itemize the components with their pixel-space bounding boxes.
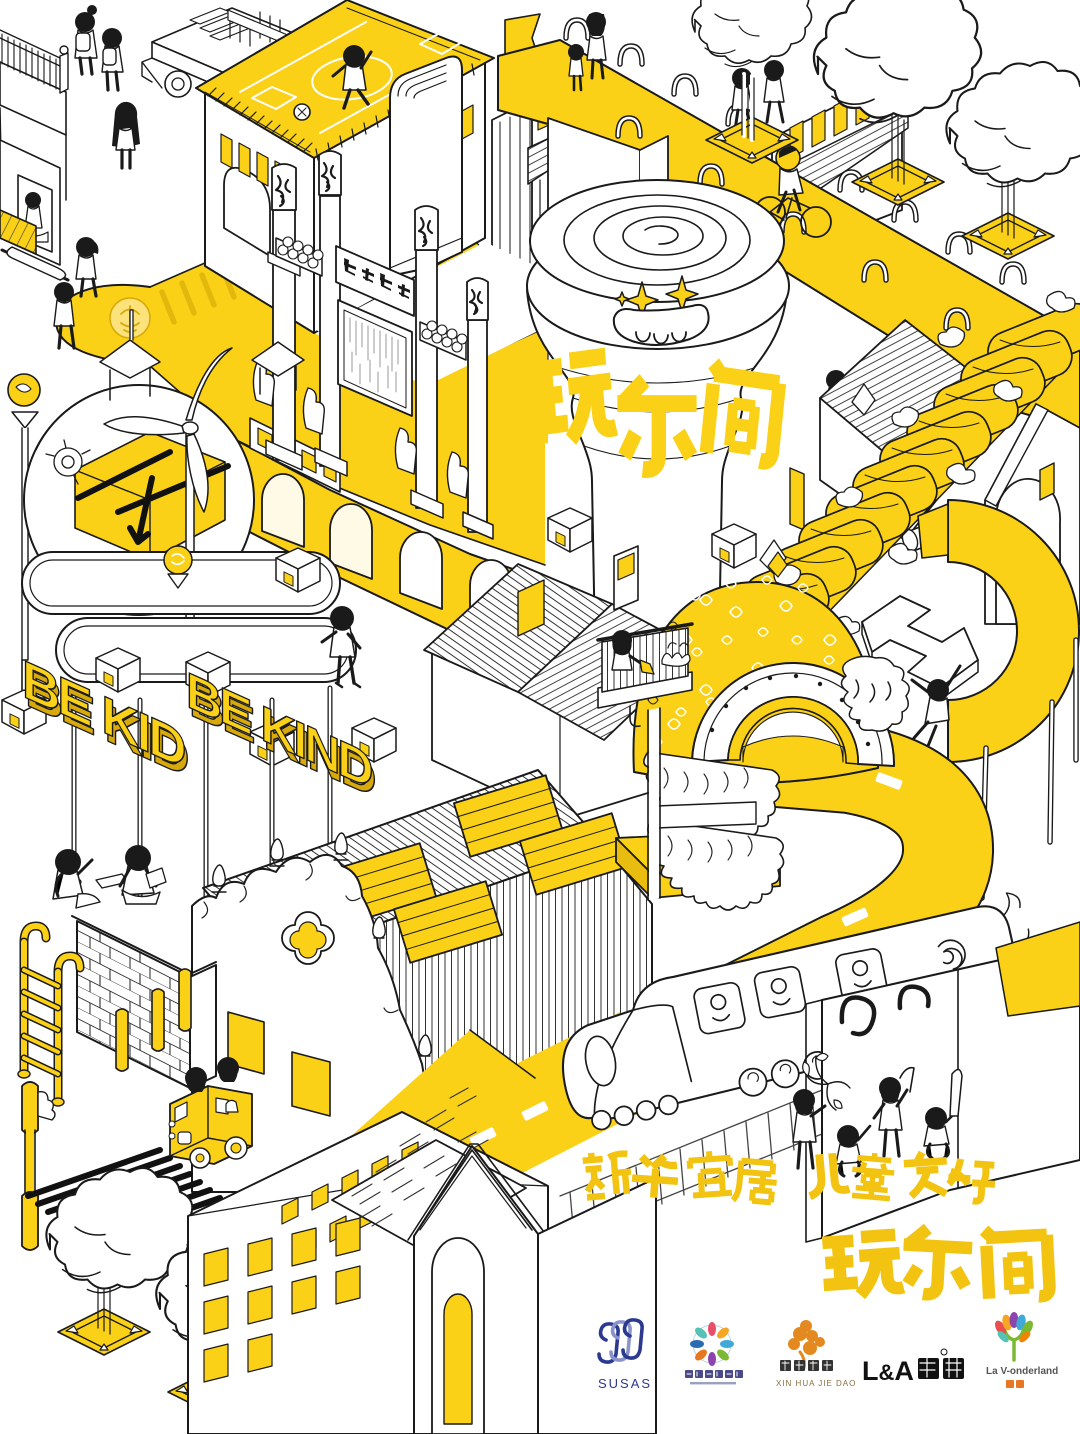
svg-text:XIN HUA JIE DAO: XIN HUA JIE DAO bbox=[776, 1379, 856, 1388]
svg-text:SUSAS: SUSAS bbox=[598, 1376, 652, 1391]
svg-text:La V-onderland: La V-onderland bbox=[986, 1366, 1058, 1377]
svg-text:L&A: L&A bbox=[862, 1356, 914, 1386]
